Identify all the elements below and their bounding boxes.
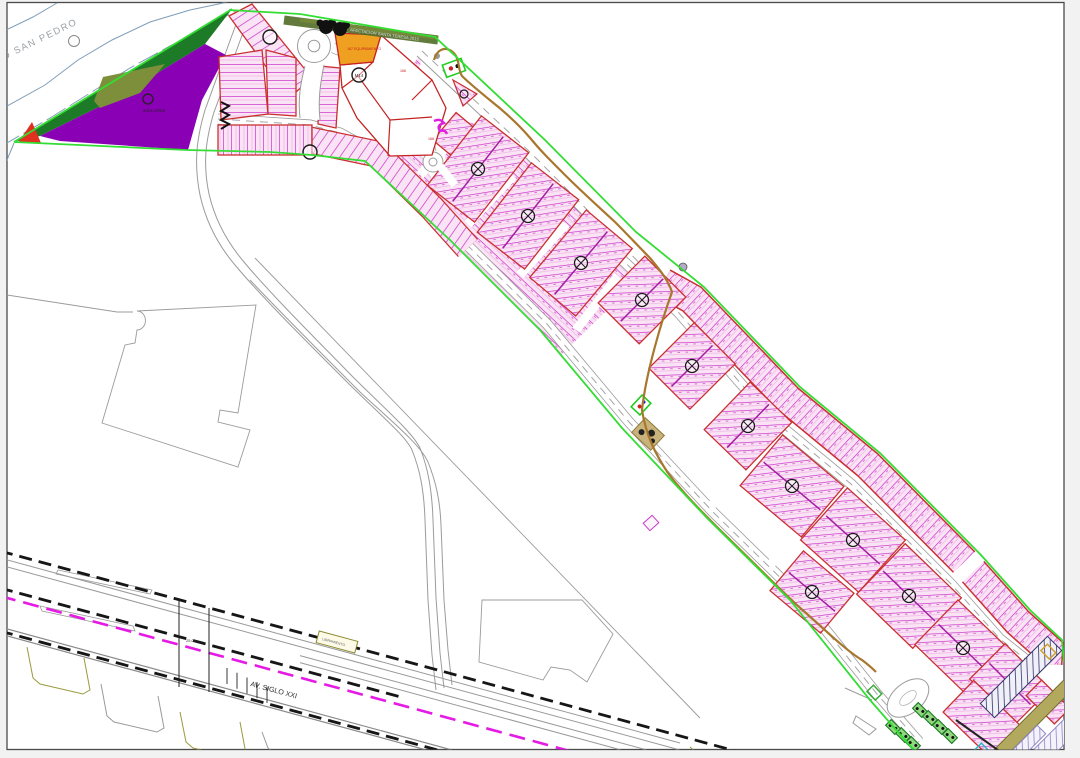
svg-text:167 EQUIPAMIENTO: 167 EQUIPAMIENTO — [347, 47, 381, 51]
svg-text:AREA VERDE: AREA VERDE — [143, 109, 166, 113]
svg-text:168: 168 — [428, 137, 434, 141]
svg-text:M14: M14 — [355, 73, 364, 78]
svg-text:25.00: 25.00 — [186, 638, 197, 643]
svg-text:166: 166 — [400, 69, 406, 73]
